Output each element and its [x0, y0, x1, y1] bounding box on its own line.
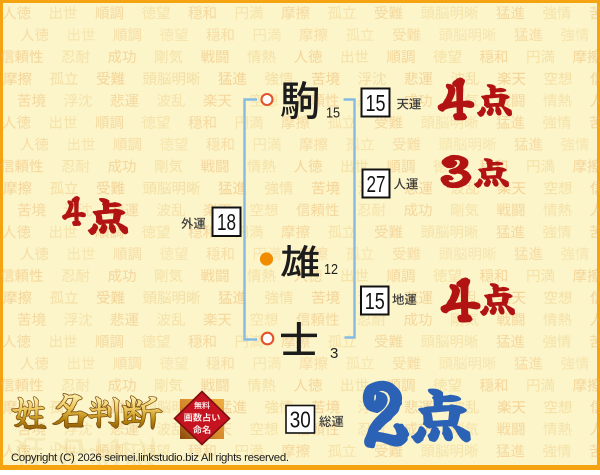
svg-text:15: 15 — [366, 90, 386, 116]
svg-text:30: 30 — [290, 407, 311, 433]
svg-text:Copyright (C) 2026 seimei.link: Copyright (C) 2026 seimei.linkstudio.biz… — [11, 452, 289, 464]
svg-text:15: 15 — [365, 288, 385, 314]
svg-text:15: 15 — [326, 105, 340, 122]
svg-text:18: 18 — [217, 209, 236, 235]
svg-text:27: 27 — [367, 171, 386, 197]
svg-text:12: 12 — [324, 261, 338, 278]
svg-text:3: 3 — [330, 345, 338, 362]
